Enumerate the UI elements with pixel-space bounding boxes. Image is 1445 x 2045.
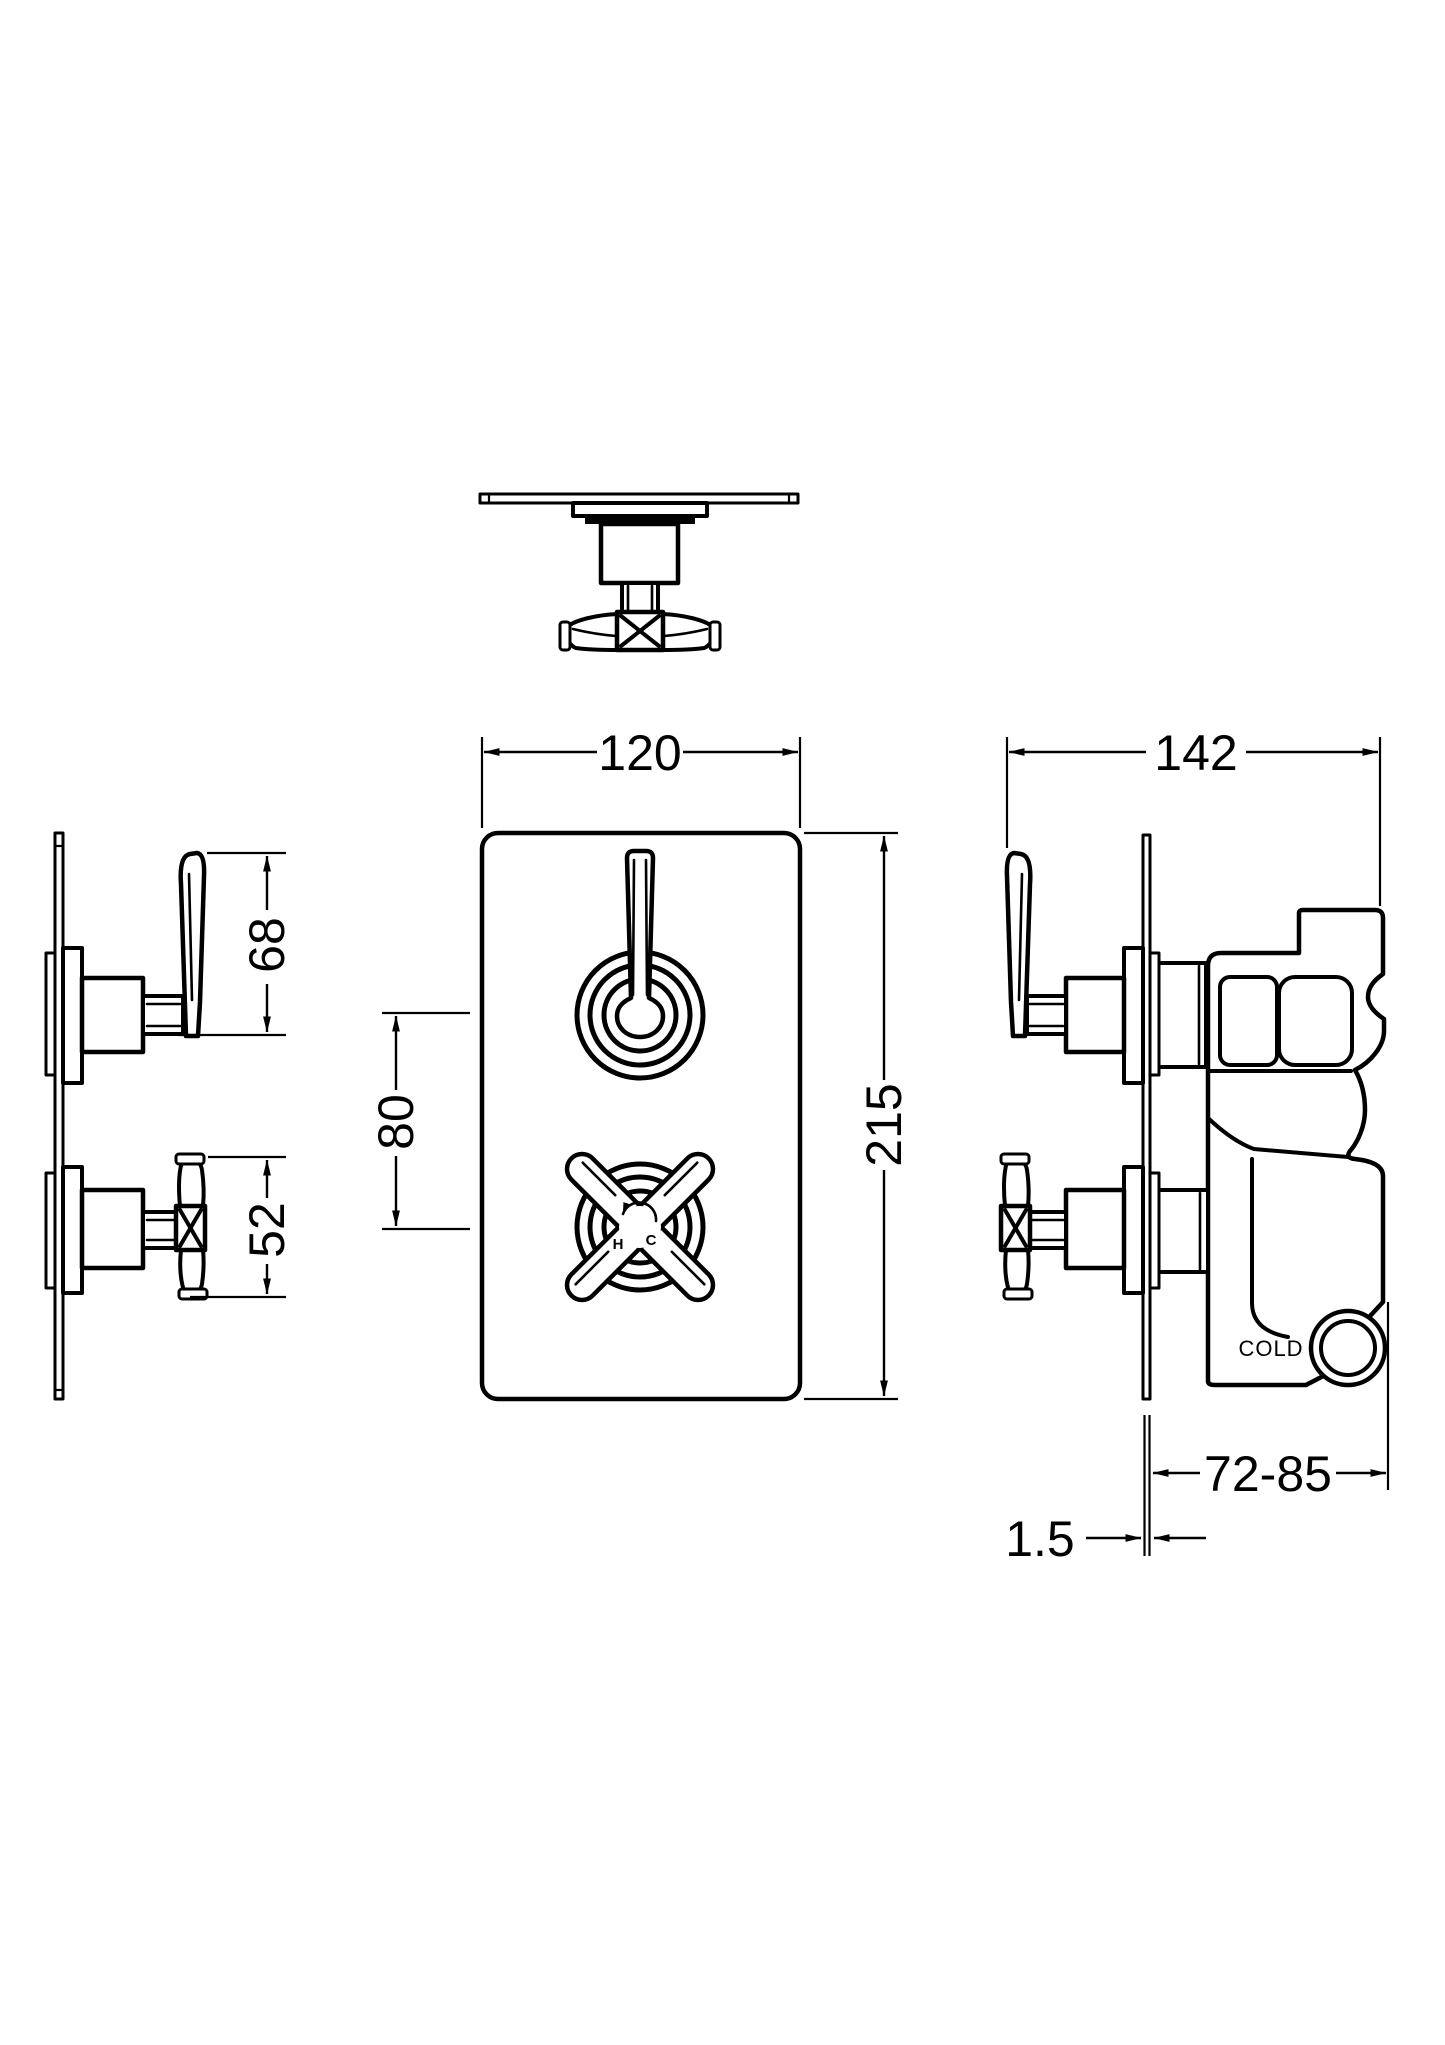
left-view-cross-assembly <box>46 1154 207 1299</box>
right-view-lever-blade <box>1007 853 1030 1036</box>
right-view-plate-edge <box>1143 835 1150 1399</box>
cross-projection-value: 52 <box>239 1202 295 1258</box>
dimension-handle-centres: 80 <box>368 1013 470 1229</box>
right-view-cross-handle-edge <box>1001 1154 1032 1299</box>
technical-drawing-page: H C 120 215 80 <box>0 0 1445 2045</box>
dimension-plate-width: 120 <box>482 725 800 828</box>
left-view-lever-stem <box>143 996 183 1034</box>
left-view-cross-backplate <box>46 1173 55 1288</box>
right-view-cross-body <box>1066 1190 1124 1268</box>
right-view-lever-body <box>1066 978 1124 1052</box>
recess-depth-value: 72-85 <box>1204 1446 1332 1502</box>
left-view-cross-flange <box>63 1167 82 1293</box>
dimension-overall-depth: 142 <box>1007 725 1380 906</box>
right-side-view: COLD <box>1001 725 1388 1567</box>
left-view-cross-body <box>82 1190 143 1268</box>
top-view-handle-right-tip <box>710 622 720 650</box>
left-view-cross-handle-edge <box>176 1154 207 1299</box>
dimension-plate-thickness: 1.5 <box>1005 1511 1206 1567</box>
handle-centres-value: 80 <box>368 1094 424 1150</box>
plate-width-value: 120 <box>598 725 681 781</box>
left-view-lever-backplate <box>46 953 55 1075</box>
left-view-lever-blade <box>181 853 204 1036</box>
front-view: H C 120 215 80 <box>368 725 912 1399</box>
cold-mark-label: C <box>646 1232 657 1249</box>
top-view-handle-left-tip <box>560 622 570 650</box>
left-view-lever-body <box>82 978 143 1052</box>
top-view-cross-handle-edge <box>560 612 720 650</box>
top-view-escutcheon-flange <box>573 503 707 516</box>
left-view-lever-assembly <box>46 853 204 1083</box>
right-view-lever-assembly <box>1007 853 1143 1083</box>
right-view-cross-assembly <box>1001 1154 1143 1299</box>
right-view-cartridge-upper <box>1220 977 1277 1065</box>
top-view-handle-hub <box>601 524 678 583</box>
left-side-view: 68 52 <box>46 833 295 1399</box>
cold-inlet-label: COLD <box>1238 1336 1303 1361</box>
right-view-lever-stem <box>1027 996 1066 1034</box>
hot-mark-label: H <box>613 1236 624 1253</box>
right-view-cross-flange <box>1124 1167 1143 1293</box>
right-view-lever-flange <box>1124 948 1143 1083</box>
lever-projection-value: 68 <box>239 917 295 973</box>
left-view-lever-flange <box>63 948 82 1083</box>
plate-thickness-value: 1.5 <box>1005 1511 1075 1567</box>
left-view-plate-edge <box>55 833 63 1399</box>
overall-depth-value: 142 <box>1154 725 1237 781</box>
top-view <box>480 494 798 650</box>
plate-height-value: 215 <box>856 1083 912 1166</box>
right-view-cartridge-lower <box>1279 977 1352 1065</box>
right-view-cross-stem <box>1027 1212 1066 1248</box>
dimension-plate-height: 215 <box>804 833 912 1399</box>
shower-valve-dimension-drawing: H C 120 215 80 <box>0 0 1445 2045</box>
